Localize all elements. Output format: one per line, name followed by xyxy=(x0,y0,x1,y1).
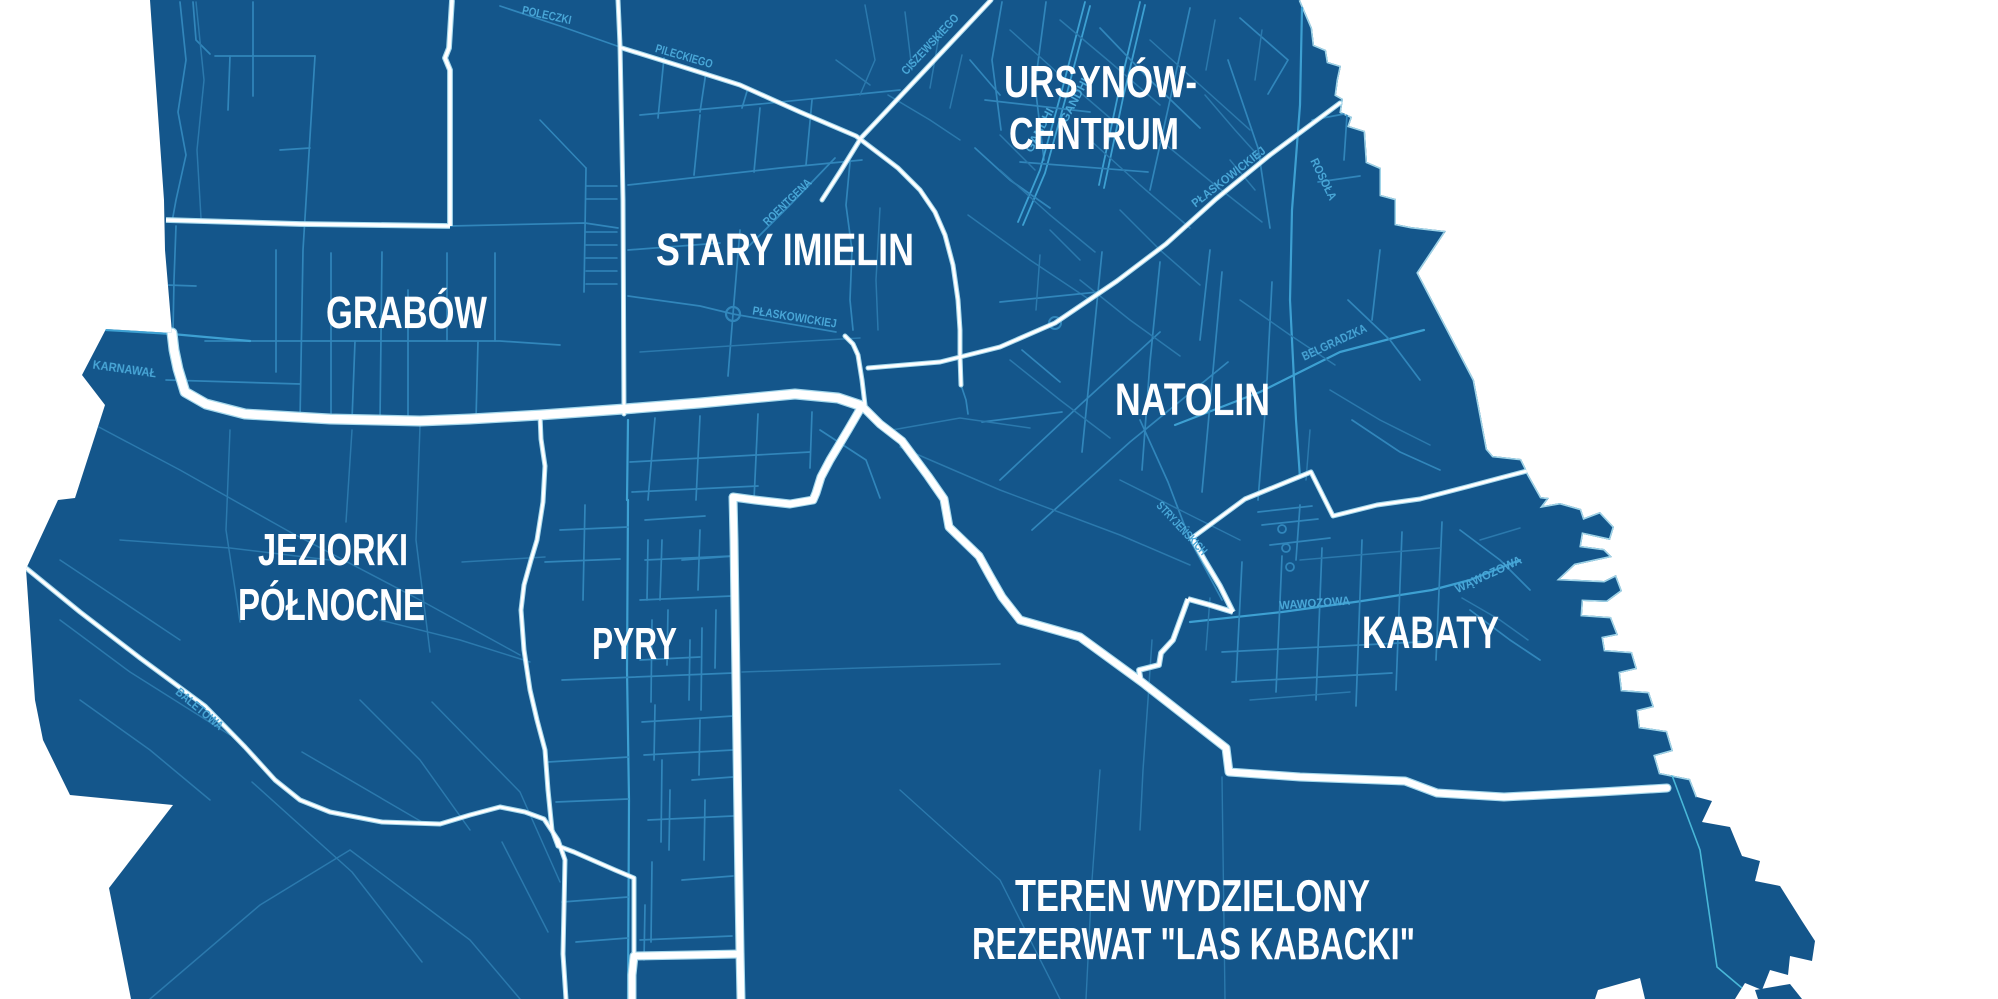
svg-text:PYRY: PYRY xyxy=(592,618,677,669)
svg-text:URSYNÓW-: URSYNÓW- xyxy=(1004,56,1197,107)
svg-text:TEREN WYDZIELONY: TEREN WYDZIELONY xyxy=(1015,870,1370,921)
svg-text:PÓŁNOCNE: PÓŁNOCNE xyxy=(238,579,425,630)
svg-text:CENTRUM: CENTRUM xyxy=(1009,108,1179,159)
svg-text:STARY IMIELIN: STARY IMIELIN xyxy=(656,224,914,275)
svg-text:GRABÓW: GRABÓW xyxy=(326,287,487,338)
svg-text:KABATY: KABATY xyxy=(1362,607,1499,658)
svg-text:NATOLIN: NATOLIN xyxy=(1115,374,1270,425)
svg-text:REZERWAT "LAS KABACKI": REZERWAT "LAS KABACKI" xyxy=(972,918,1415,969)
svg-text:JEZIORKI: JEZIORKI xyxy=(258,524,408,575)
